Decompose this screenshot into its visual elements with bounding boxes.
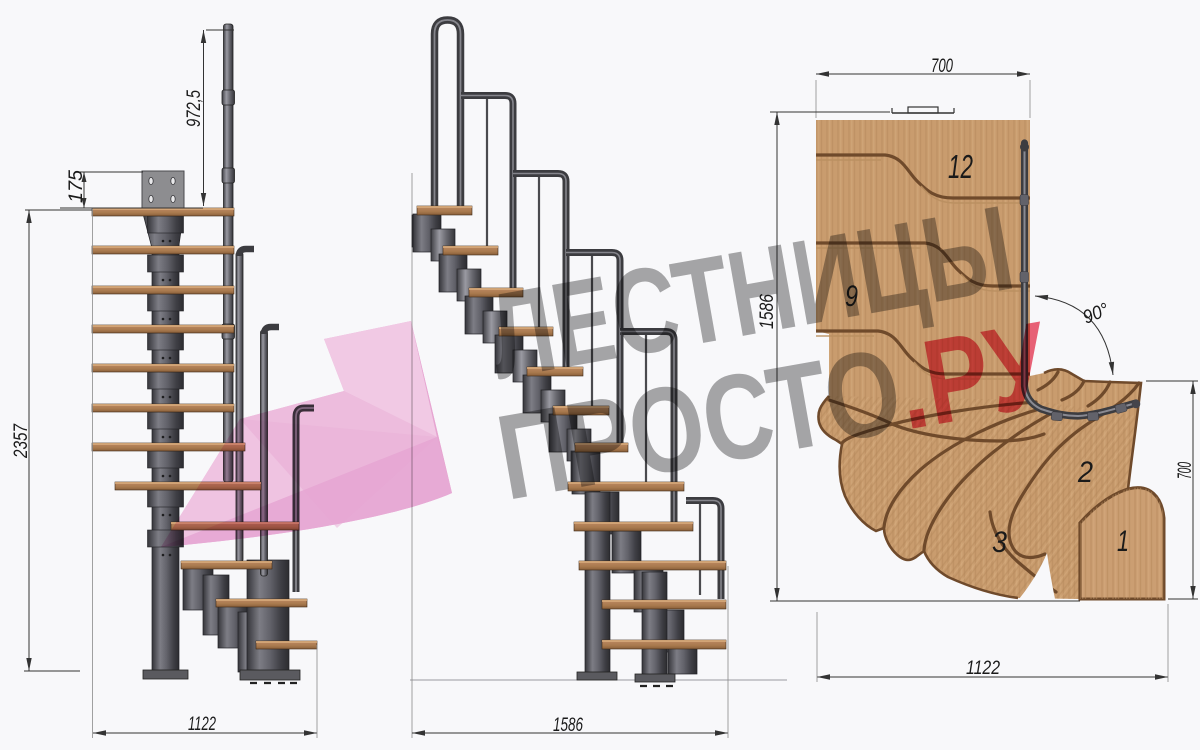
svg-text:2357: 2357 (11, 423, 32, 459)
svg-text:1586: 1586 (553, 715, 583, 736)
svg-text:175: 175 (66, 170, 87, 203)
svg-text:1122: 1122 (966, 658, 1000, 679)
svg-text:1122: 1122 (188, 714, 216, 735)
svg-text:2: 2 (1077, 456, 1093, 489)
svg-text:972,5: 972,5 (184, 90, 205, 127)
svg-text:1: 1 (1117, 525, 1129, 558)
svg-text:700: 700 (1175, 462, 1196, 479)
svg-text:12: 12 (948, 148, 973, 185)
svg-text:700: 700 (931, 56, 953, 77)
svg-text:3: 3 (992, 526, 1007, 559)
